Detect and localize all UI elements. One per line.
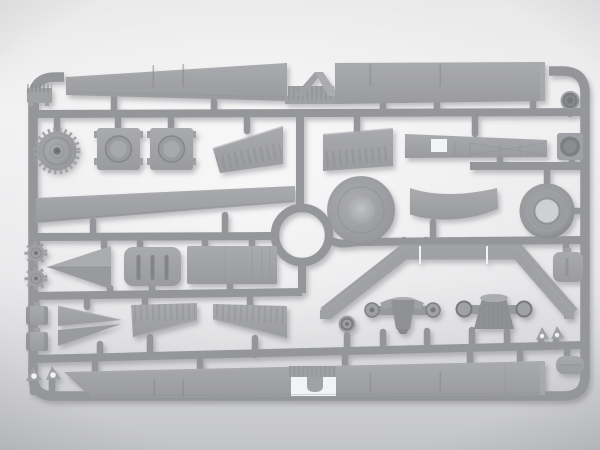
part-slotted-panel <box>124 247 181 286</box>
part-axle-hub-box-1 <box>94 128 143 170</box>
part-road-wheel-tire <box>520 184 575 239</box>
part-wheel-disc <box>328 177 395 244</box>
sprue-photo-svg <box>0 0 600 450</box>
part-bed-side-panel-top-right <box>335 62 545 104</box>
part-floor-panel <box>187 246 277 284</box>
part-hub-cap-box <box>557 133 583 160</box>
sprue-photo <box>0 0 600 450</box>
part-battery-box <box>553 248 583 282</box>
part-ribbed-wedge-2 <box>323 129 393 171</box>
part-tool-box <box>556 356 584 374</box>
part-axle-hub-box-2 <box>147 128 196 170</box>
